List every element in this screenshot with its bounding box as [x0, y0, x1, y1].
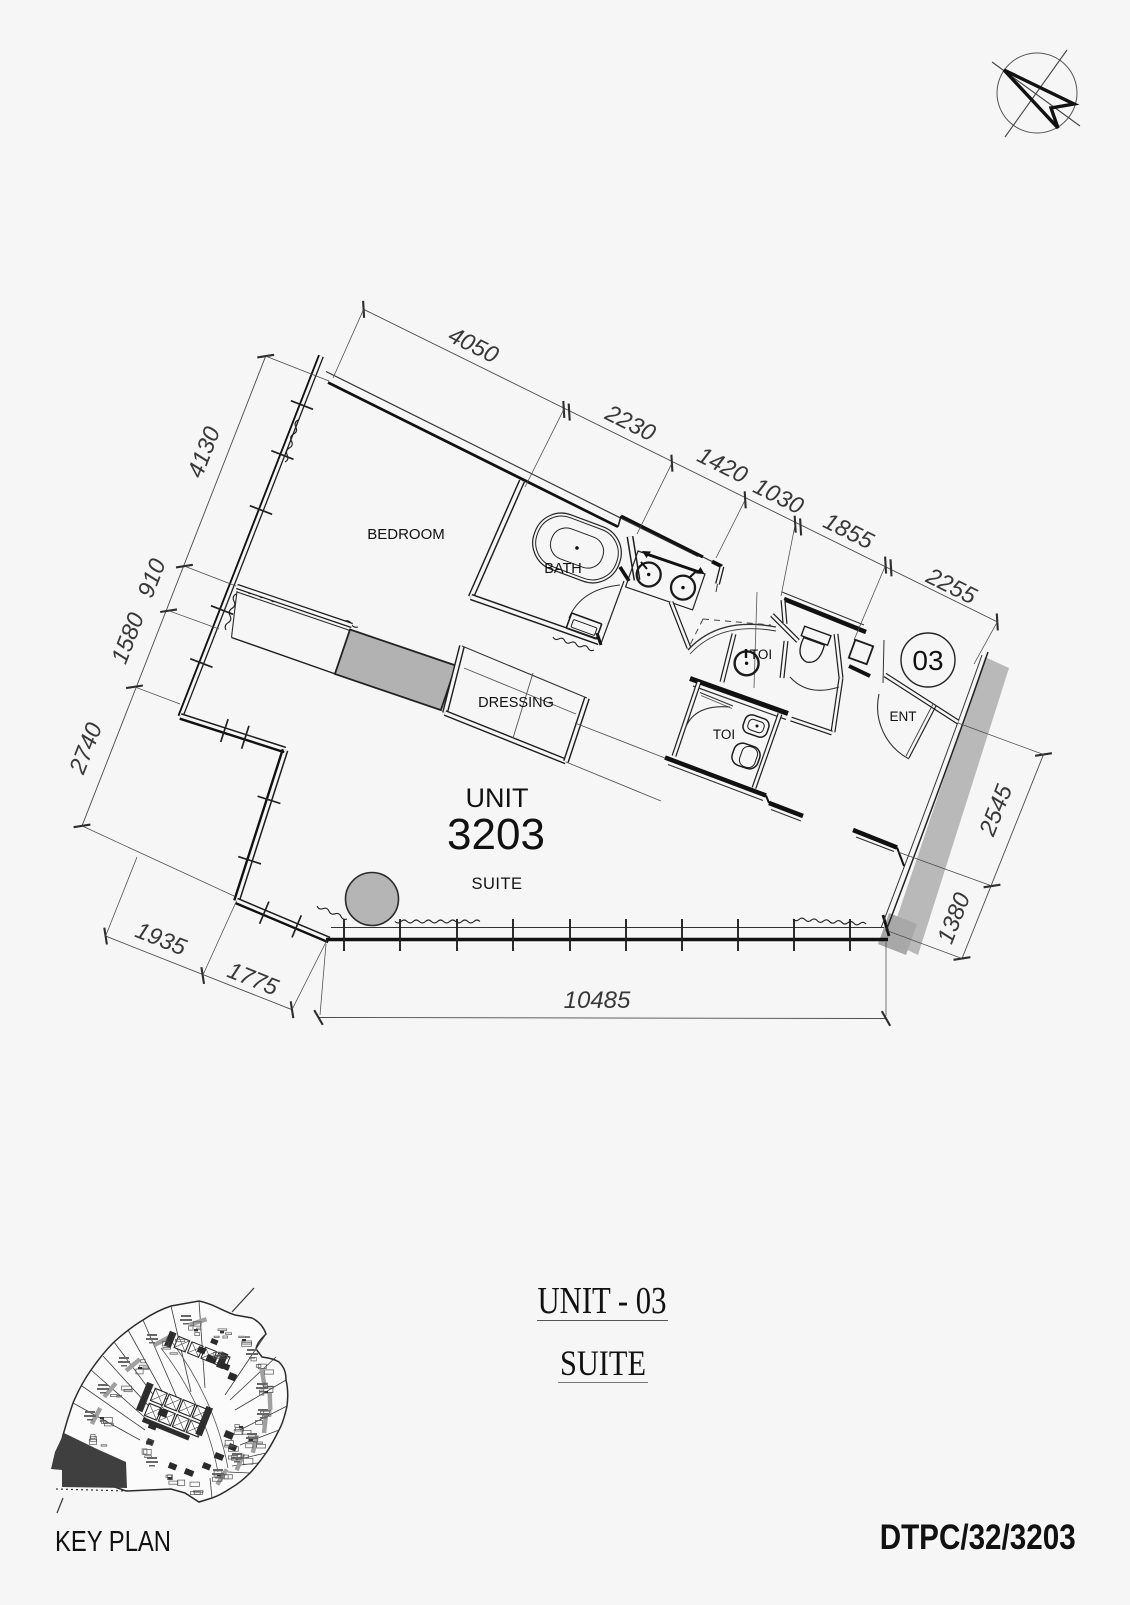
- svg-text:TOI: TOI: [713, 727, 735, 742]
- svg-text:03: 03: [912, 645, 943, 676]
- svg-text:DRESSING: DRESSING: [478, 695, 554, 711]
- svg-text:BEDROOM: BEDROOM: [367, 526, 445, 543]
- svg-text:10485: 10485: [564, 987, 631, 1014]
- svg-text:SUITE: SUITE: [471, 875, 522, 893]
- svg-text:KEY PLAN: KEY PLAN: [55, 1526, 171, 1558]
- svg-text:BATH: BATH: [544, 561, 582, 577]
- svg-text:ENT: ENT: [890, 709, 917, 724]
- svg-text:TOI: TOI: [750, 647, 772, 662]
- svg-text:UNIT: UNIT: [466, 783, 529, 813]
- svg-text:UNIT - 03: UNIT - 03: [538, 1280, 667, 1322]
- svg-text:SUITE: SUITE: [560, 1343, 646, 1383]
- svg-text:3203: 3203: [447, 810, 545, 859]
- svg-text:DTPC/32/3203: DTPC/32/3203: [880, 1518, 1076, 1557]
